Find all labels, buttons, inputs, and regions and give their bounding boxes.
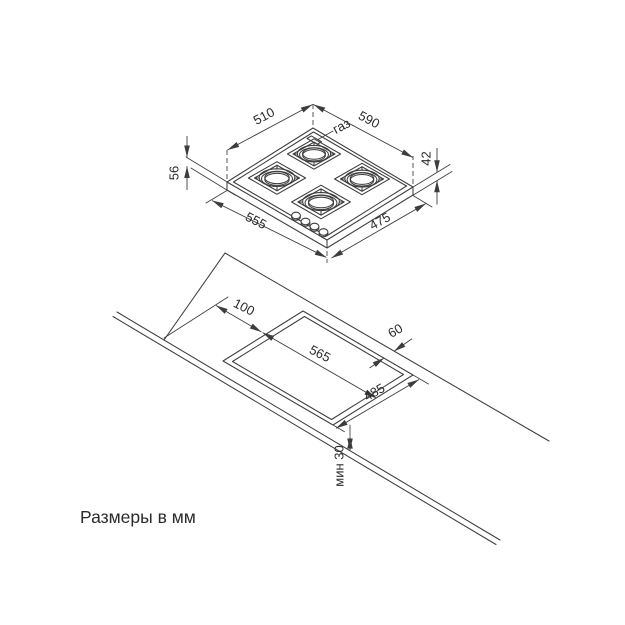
worktop-drawing: 100 565 485 60 мин 30 [113,253,549,545]
dim-line-60-upper [394,339,412,352]
dim-label-510: 510 [251,104,277,127]
dim-line-565 [263,333,377,399]
dim-label-min30: мин 30 [332,445,347,486]
worktop-left-reference-line [164,297,228,338]
control-knob-1 [292,212,301,220]
worktop-back-edge [225,253,549,441]
control-knob-2 [301,218,310,226]
dim-label-60: 60 [385,320,405,340]
dim-label-565: 565 [307,342,333,365]
hob-drawing: 510 590 газ 56 42 555 475 [167,104,453,264]
control-knob-4 [319,229,328,237]
dim-label-590: 590 [356,108,382,131]
worktop-left-end-edge [164,253,225,340]
dim-label-42: 42 [419,151,434,165]
diagram-canvas: 510 590 газ 56 42 555 475 [0,0,625,625]
caption-units: Размеры в мм [80,507,196,527]
technical-drawing-page: 510 590 газ 56 42 555 475 [0,0,625,625]
gas-label: газ [330,115,353,136]
dim-label-56: 56 [167,166,182,180]
dim-label-100: 100 [231,295,257,318]
dim-line-60-lower [370,358,385,368]
worktop-front-top-edge [117,312,500,540]
control-knob-3 [310,223,319,231]
